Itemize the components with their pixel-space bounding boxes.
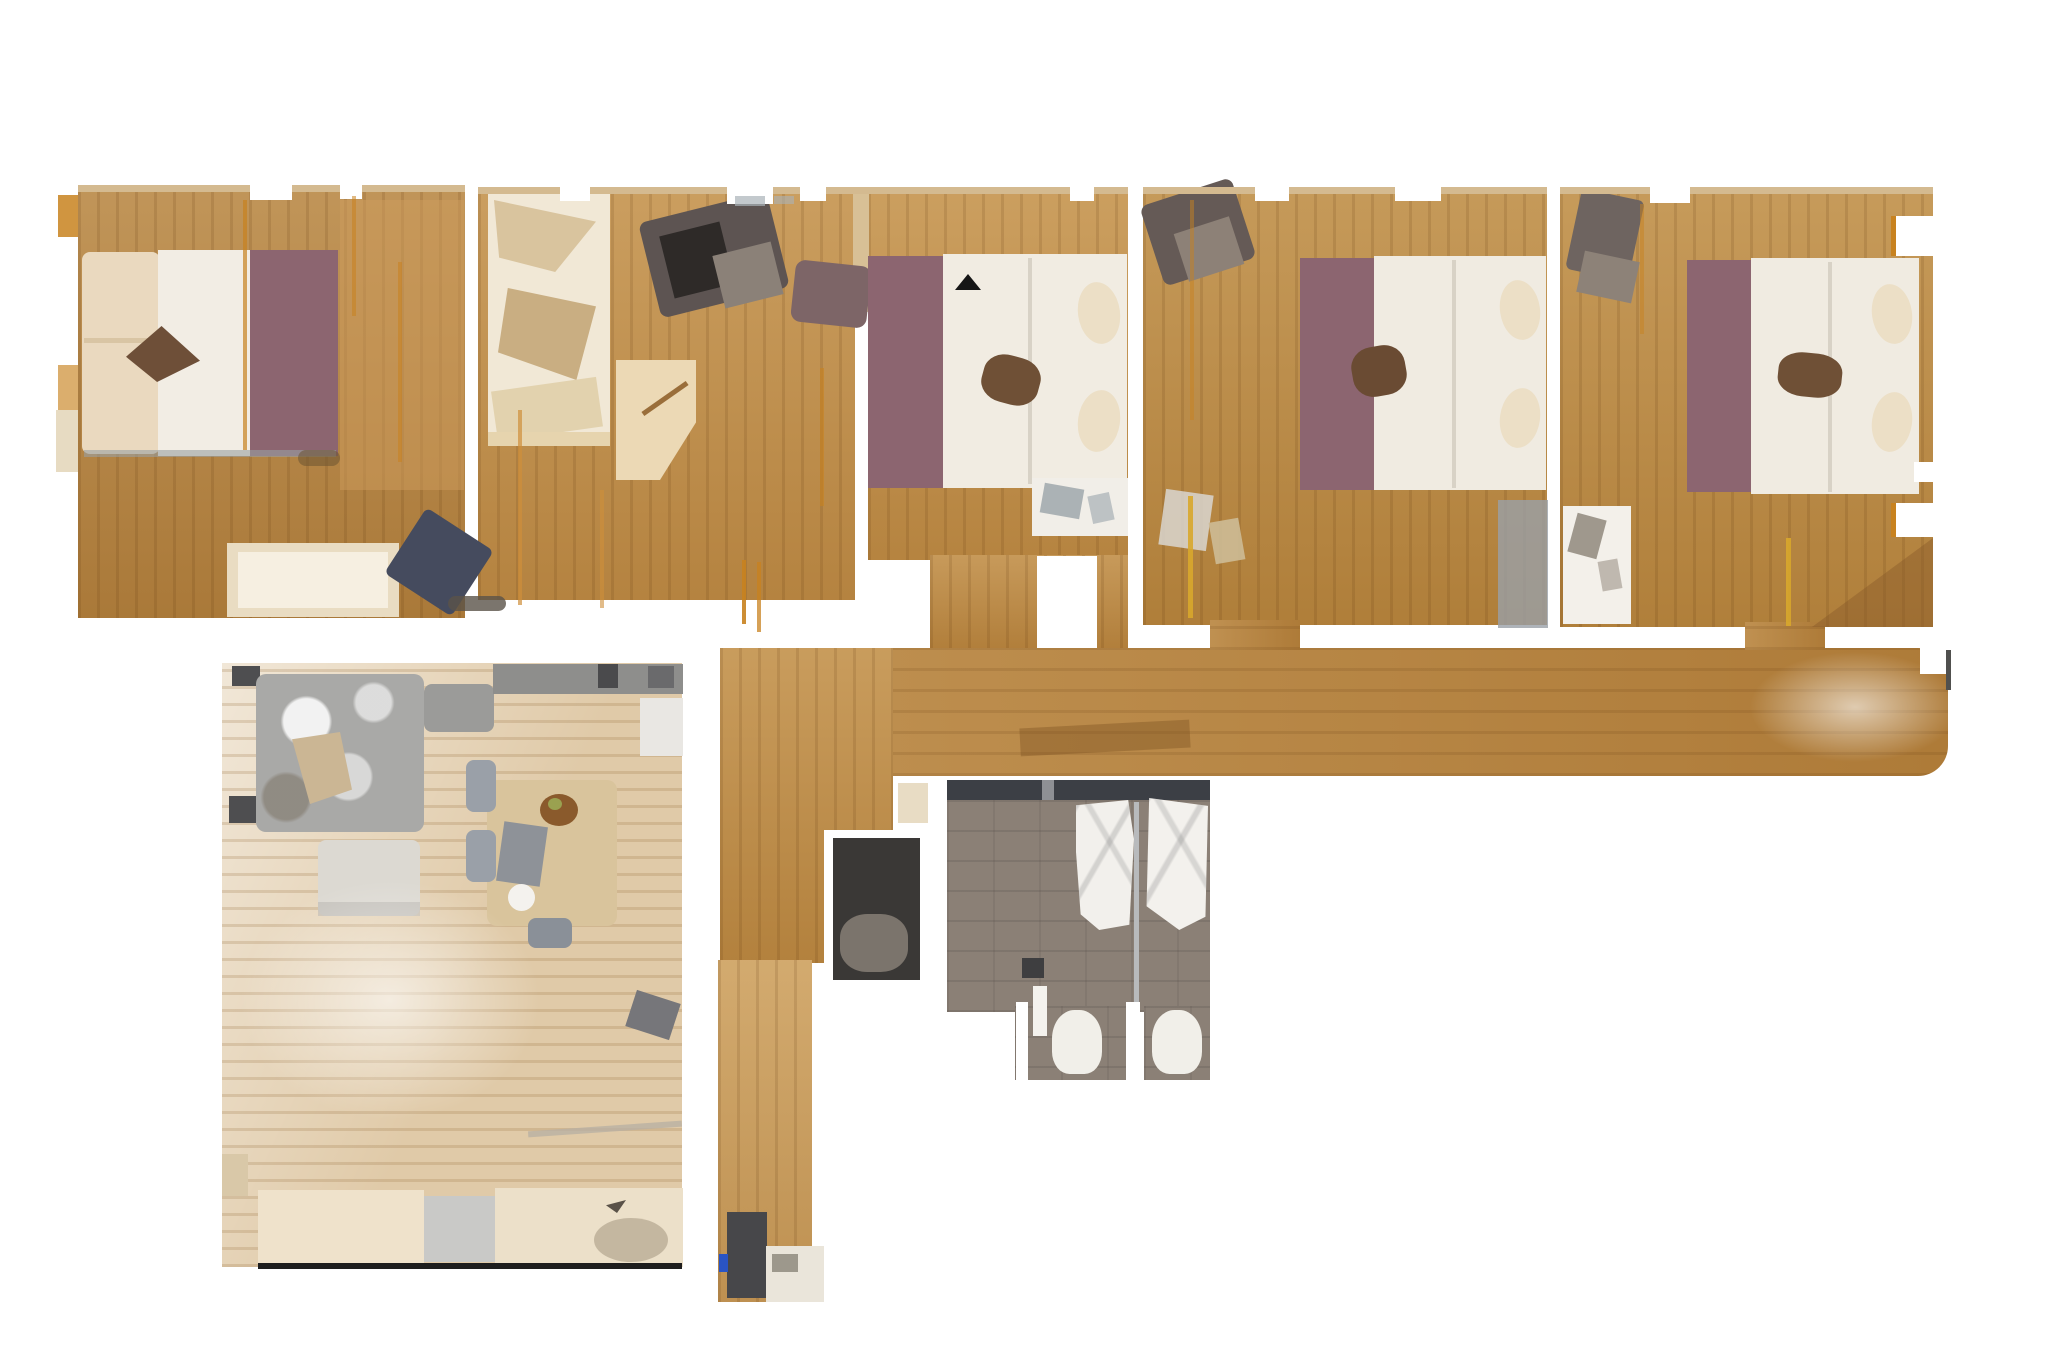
bed-3-crease [1452,260,1456,488]
scan-line-1c [398,262,402,462]
window-notch-1a [250,182,292,200]
living-beige-bit [222,1154,248,1196]
bathroom-top-band-gap [1042,780,1054,802]
scan-line-1b [352,196,356,316]
window-4-top-notch [1914,462,1934,482]
sofa-smudge [594,1218,668,1262]
toilet-right [1152,1010,1202,1074]
shower-room-blob [840,914,908,972]
bathroom-dark-bit [1022,958,1044,978]
corridor-dark-cabinet [727,1212,767,1298]
window-notch-1b [340,184,362,199]
corridor-blue-bit [719,1254,728,1272]
bedroom-1-window-frame-a [58,195,78,237]
bedroom-3-artifact-line [1188,496,1193,618]
dining-chair-2 [466,830,496,882]
bathroom-top-band [947,780,1210,802]
bed-1-blanket [250,250,338,456]
stall-wall-b [1126,1002,1140,1080]
hallway-end-tick [1946,650,1951,690]
bedroom-1-smudge [298,450,340,466]
window-notch-4a [1650,186,1690,203]
floorplan [0,0,2048,1365]
icicle-bit-b [774,196,794,204]
bathroom-door-cream-bit [898,783,928,823]
kitchen-bit [648,666,674,688]
bedroom-3-wall-top [1143,187,1547,194]
plum-blob-2a [790,259,872,329]
bedroom-4-artifact-line [1786,538,1791,626]
bedroom-1-cream-bit [56,410,78,472]
bedroom-3-door-connector [1210,620,1300,650]
closet-2a-shelf [488,432,610,446]
window-4-tick-b [1891,503,1896,537]
dark-specks-1 [448,596,506,611]
towel-right [1144,798,1208,930]
wall-stub-2b [1037,556,1097,648]
scan-line-4a [1640,204,1644,334]
sofa-base-line [258,1263,682,1269]
bedroom-1-window-frame-b [58,365,78,411]
dining-chair-1 [466,760,496,812]
living-corner-dark-b [229,796,256,823]
window-4-frame-b [1895,503,1933,537]
bedroom-3-bits-a [1158,489,1213,551]
corridor-bench-marks [772,1254,798,1272]
bedroom-2b-door-zone-floor [930,555,1128,650]
orange-stick-a [742,560,746,624]
window-notch-2a [560,184,590,201]
window-notch-2c [800,184,826,201]
bed-4-blanket [1687,260,1751,492]
window-notch-2d [1070,184,1094,201]
laptop [496,821,548,887]
window-4-tick-a [1891,216,1896,256]
sofa-left [258,1190,424,1267]
stall-wall-a [1016,1002,1028,1080]
scan-line-1a [243,200,247,450]
bathroom-white-sliver [1033,986,1047,1036]
living-sheen [240,880,540,1120]
fruit-green [548,798,562,810]
fridge [640,698,683,756]
kitchen-dark-appliance [598,664,618,688]
toilet-left [1052,1010,1102,1074]
bedroom-4-wall-top [1560,187,1933,194]
orange-stick-b [757,562,761,632]
bedroom-4-door-connector [1745,622,1825,650]
rug-3 [1498,500,1548,628]
couch-arm [424,684,494,732]
bedroom-1-light-patch [340,200,464,490]
window-notch-3a [1255,184,1289,201]
bed-2b-blanket [868,256,943,488]
bench-1-inner [238,552,388,608]
icicle-bit-a [735,196,765,206]
window-4-frame-a [1895,216,1933,256]
towel-left [1076,800,1134,930]
scan-line-2b [600,490,604,608]
scan-line-2a [518,410,522,605]
scan-line-3a [1190,200,1194,420]
scan-line-2c [820,368,824,506]
window-notch-3b [1395,186,1441,201]
sofa-mid [424,1196,495,1262]
